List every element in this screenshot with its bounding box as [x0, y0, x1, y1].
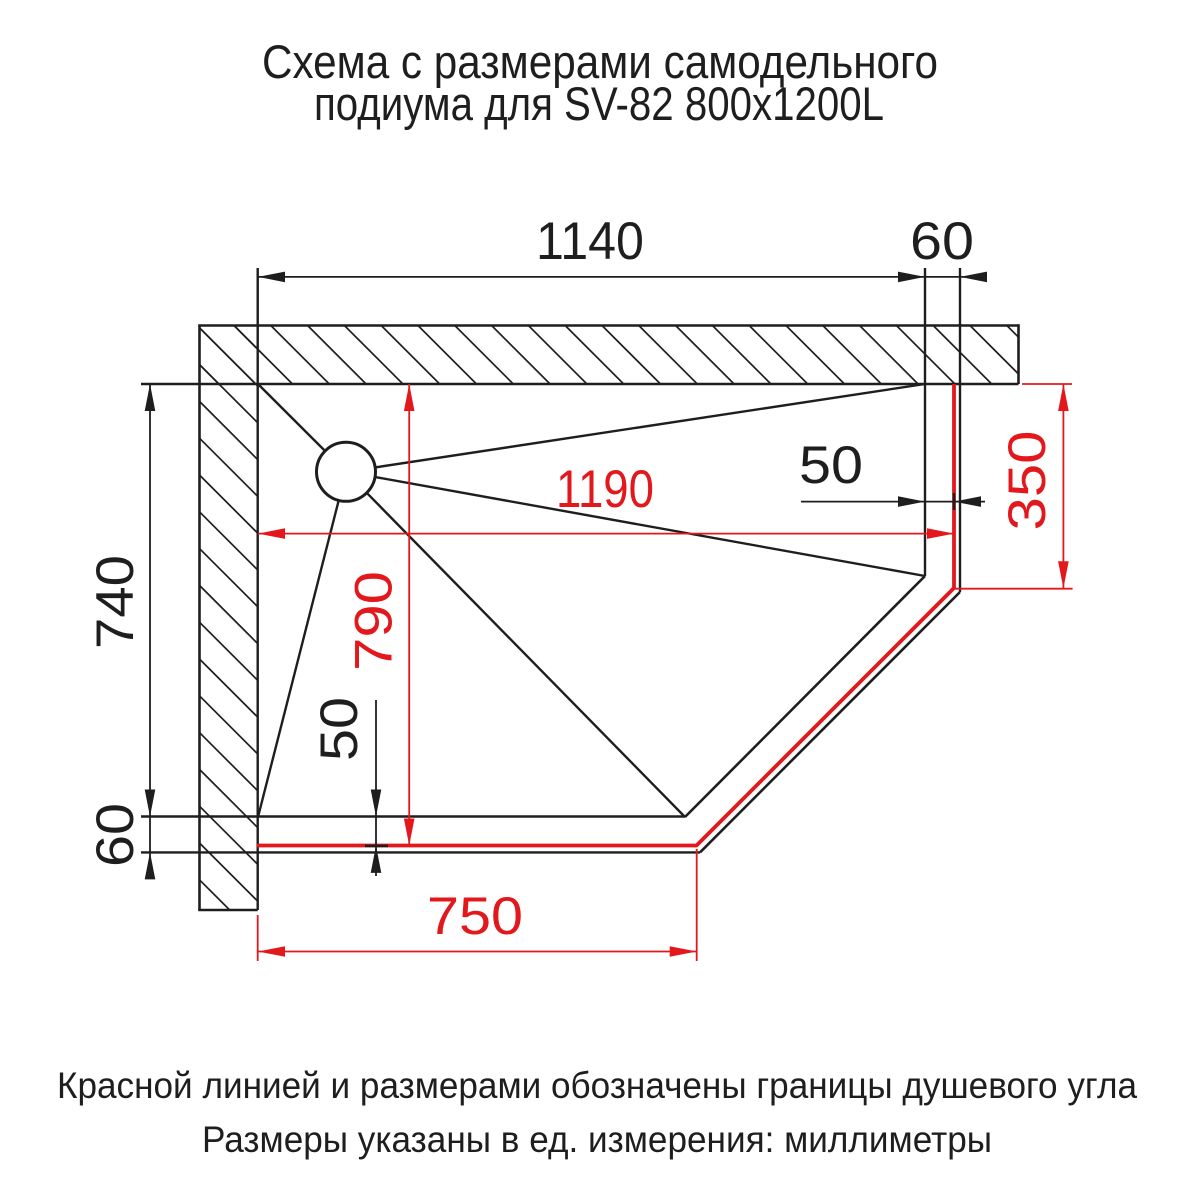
svg-text:Красной линией и размерами обо: Красной линией и размерами обозначены гр…	[57, 1065, 1137, 1106]
svg-text:50: 50	[799, 436, 863, 495]
svg-text:750: 750	[427, 887, 523, 946]
svg-text:подиума для SV-82 800x1200L: подиума для SV-82 800x1200L	[314, 77, 884, 130]
svg-text:60: 60	[910, 212, 974, 271]
svg-text:50: 50	[310, 697, 369, 761]
svg-text:790: 790	[345, 571, 404, 671]
svg-text:1140: 1140	[536, 212, 644, 271]
svg-text:1190: 1190	[556, 460, 654, 519]
svg-text:350: 350	[998, 431, 1057, 531]
svg-text:60: 60	[86, 803, 145, 867]
svg-text:740: 740	[86, 555, 145, 649]
svg-text:Размеры указаны в ед. измерени: Размеры указаны в ед. измерения: миллиме…	[202, 1119, 992, 1160]
